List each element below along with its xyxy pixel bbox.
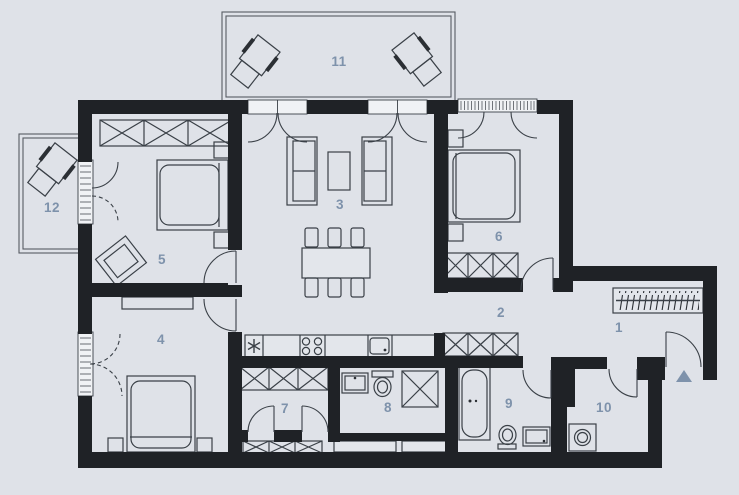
french-door [368,100,427,114]
room-label-8: 8 [384,400,392,415]
cabinet [334,441,396,452]
french-door [248,100,307,114]
room-label-1: 1 [615,320,623,335]
cabinet [402,441,446,452]
french-door [78,160,93,224]
dining-table [302,248,370,278]
room-label-11: 11 [331,54,346,69]
room-label-4: 4 [157,332,165,347]
room-label-6: 6 [495,229,503,244]
room-label-9: 9 [505,396,513,411]
coat-rack-icon [613,288,703,313]
floor-plan-canvas: 1 2 3 4 5 6 7 8 9 10 11 12 [0,0,739,495]
room-label-2: 2 [497,305,505,320]
room-label-7: 7 [281,401,289,416]
room-label-5: 5 [158,252,166,267]
room-label-3: 3 [336,197,344,212]
room-label-10: 10 [596,400,612,415]
room-label-12: 12 [44,200,60,215]
floor-plan-page: 1 2 3 4 5 6 7 8 9 10 11 12 [0,0,739,495]
kitchen-counter [245,335,435,357]
window [458,99,537,112]
